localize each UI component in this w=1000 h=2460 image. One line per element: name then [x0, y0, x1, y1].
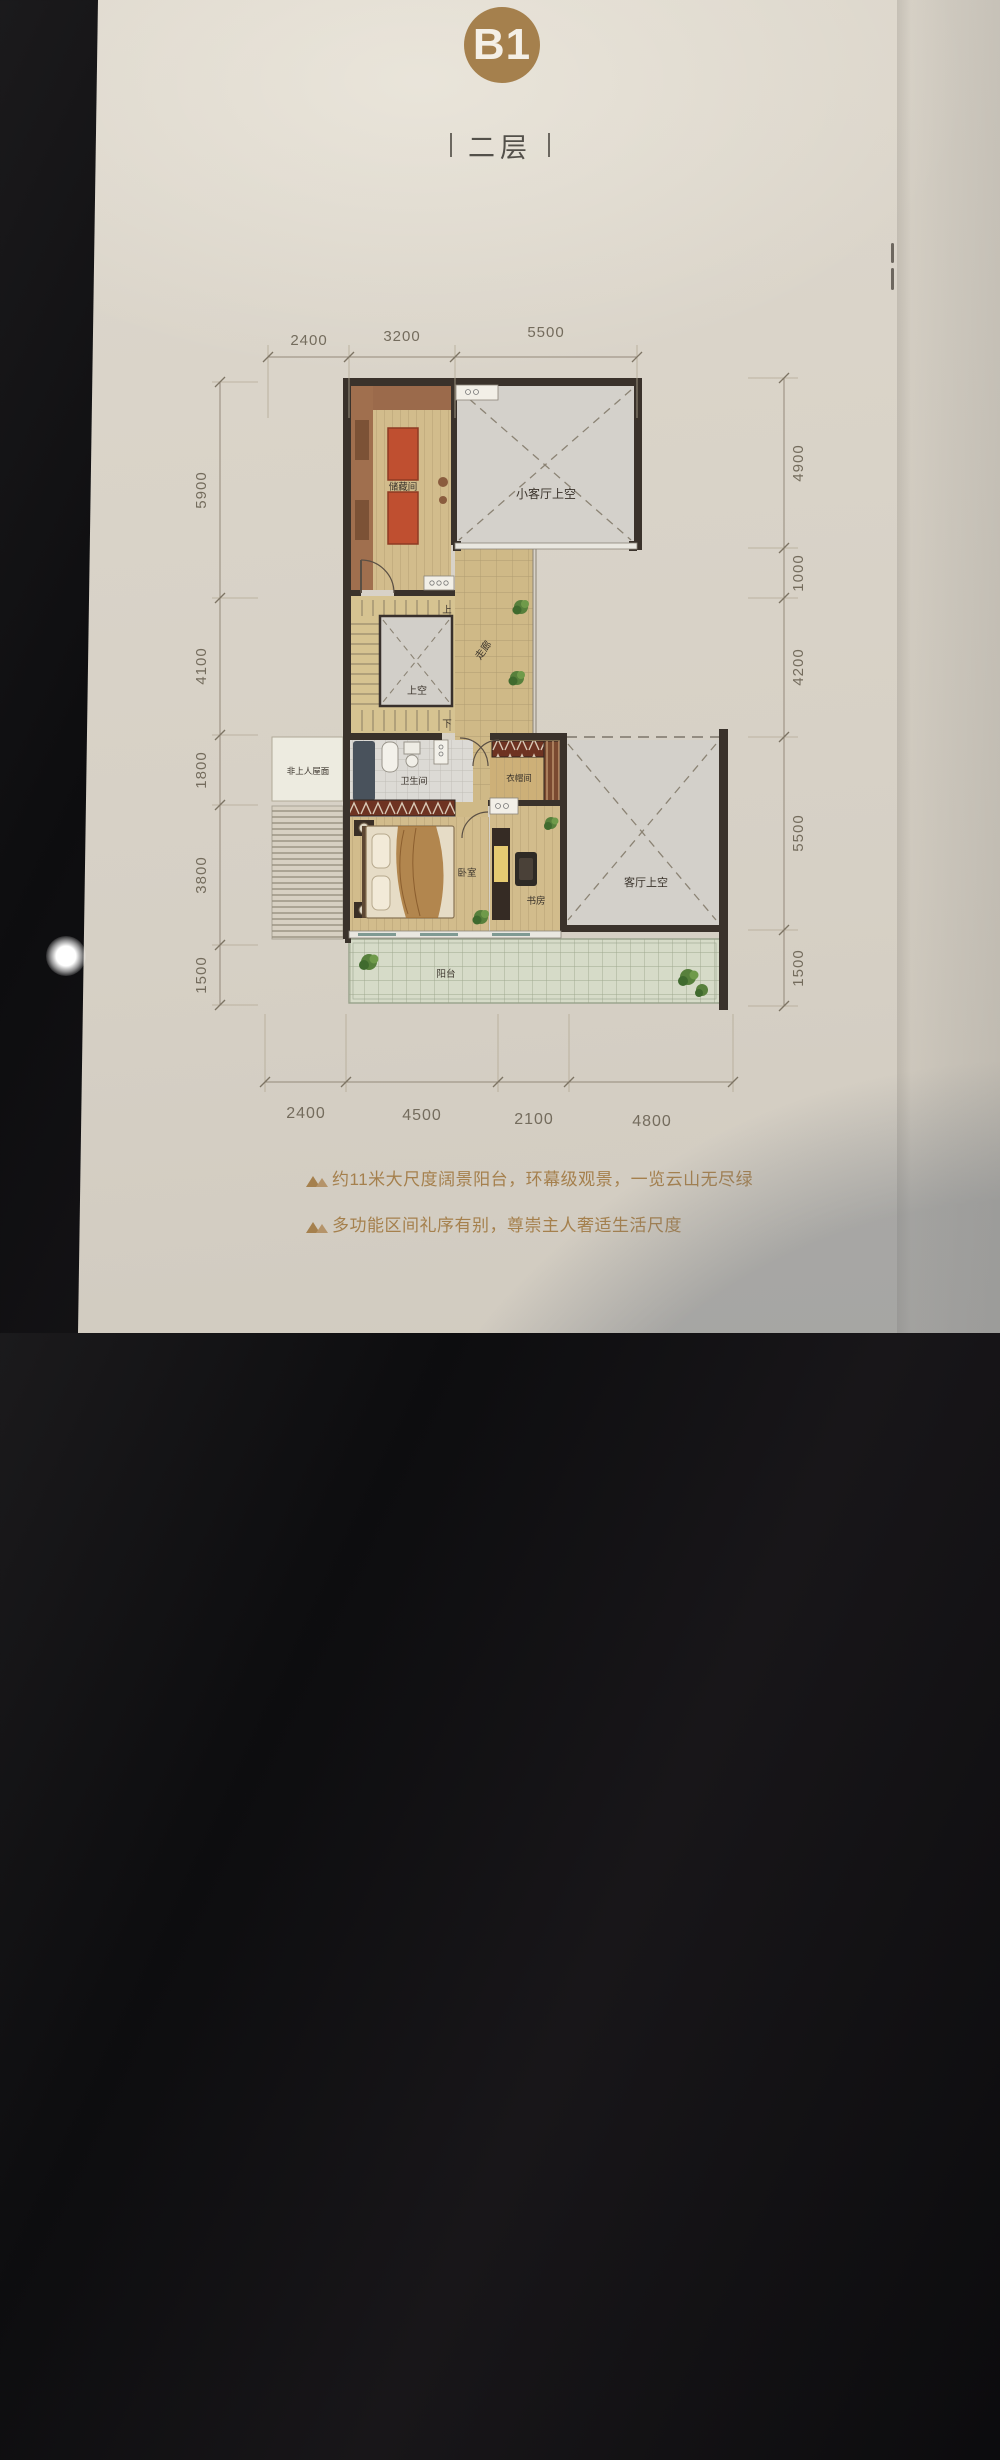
dim-label-left-3: 3800: [193, 856, 210, 893]
feature-item: 多功能区间礼序有别，尊崇主人奢适生活尺度: [306, 1214, 786, 1238]
dim-label-top-0: 2400: [290, 332, 327, 349]
room-roof: 非上人屋面: [272, 737, 343, 939]
dimension-right: 4900 1000 4200 5500 1500: [748, 373, 807, 1011]
dim-label-left-1: 4100: [193, 647, 210, 684]
room-label-roof: 非上人屋面: [287, 766, 330, 776]
room-living-void: 客厅上空: [566, 737, 719, 925]
dim-label-right-4: 1500: [790, 949, 807, 986]
room-label-cloakroom: 衣帽间: [506, 773, 532, 783]
room-label-bedroom: 卧室: [457, 867, 476, 879]
dim-label-bottom-0: 2400: [286, 1105, 326, 1122]
dim-label-top-1: 3200: [383, 328, 420, 345]
dim-label-right-3: 5500: [790, 814, 807, 851]
room-label-bathroom: 卫生间: [400, 775, 427, 786]
feature-list: 约11米大尺度阔景阳台，环幕级观景，一览云山无尽绿 多功能区间礼序有别，尊崇主人…: [306, 1168, 786, 1260]
room-storage: 储藏间: [351, 386, 451, 590]
dim-label-bottom-3: 4800: [632, 1113, 672, 1130]
room-label-storage: 储藏间: [389, 481, 418, 493]
room-label-small-living-void: 小客厅上空: [516, 486, 576, 501]
feature-text: 多功能区间礼序有别，尊崇主人奢适生活尺度: [332, 1214, 682, 1238]
floor-plan: 储藏间 小客厅上空 走廊: [0, 0, 1000, 1333]
dim-label-left-2: 1800: [193, 751, 210, 788]
dim-label-left-0: 5900: [193, 471, 210, 508]
dimension-bottom: 2400 4500 2100 4800: [260, 1014, 738, 1130]
dim-label-right-1: 1000: [790, 554, 807, 591]
room-bathroom: 卫生间: [350, 740, 473, 802]
room-balcony: 阳台: [349, 939, 720, 1003]
room-label-stair-void: 上空: [407, 684, 427, 697]
mountain-icon: [306, 1219, 332, 1235]
feature-text: 约11米大尺度阔景阳台，环幕级观景，一览云山无尽绿: [332, 1168, 753, 1192]
room-cloakroom: 衣帽间: [490, 740, 560, 804]
dim-label-left-4: 1500: [193, 956, 210, 993]
room-bedroom: 卧室: [349, 800, 489, 933]
dim-label-bottom-2: 2100: [514, 1111, 554, 1128]
room-label-study: 书房: [526, 895, 545, 907]
room-label-up: 上: [442, 605, 452, 616]
dim-label-right-0: 4900: [790, 444, 807, 481]
dim-label-bottom-1: 4500: [402, 1107, 442, 1124]
mountain-icon: [306, 1173, 332, 1189]
brochure-page: B1 二层: [0, 0, 1000, 1333]
page-edge-mark: [891, 243, 895, 293]
room-label-down: 下: [442, 719, 452, 730]
light-reflection-dot: [46, 936, 86, 976]
dim-label-top-2: 5500: [527, 324, 564, 341]
feature-item: 约11米大尺度阔景阳台，环幕级观景，一览云山无尽绿: [306, 1168, 786, 1192]
room-small-living-void: 小客厅上空: [457, 386, 634, 543]
room-label-balcony: 阳台: [436, 968, 455, 980]
dim-label-right-2: 4200: [790, 648, 807, 685]
dimension-left: 5900 4100 1800 3800 1500: [193, 377, 258, 1010]
room-label-living-void: 客厅上空: [624, 875, 668, 889]
staircase: 上 上空 下: [351, 596, 455, 733]
